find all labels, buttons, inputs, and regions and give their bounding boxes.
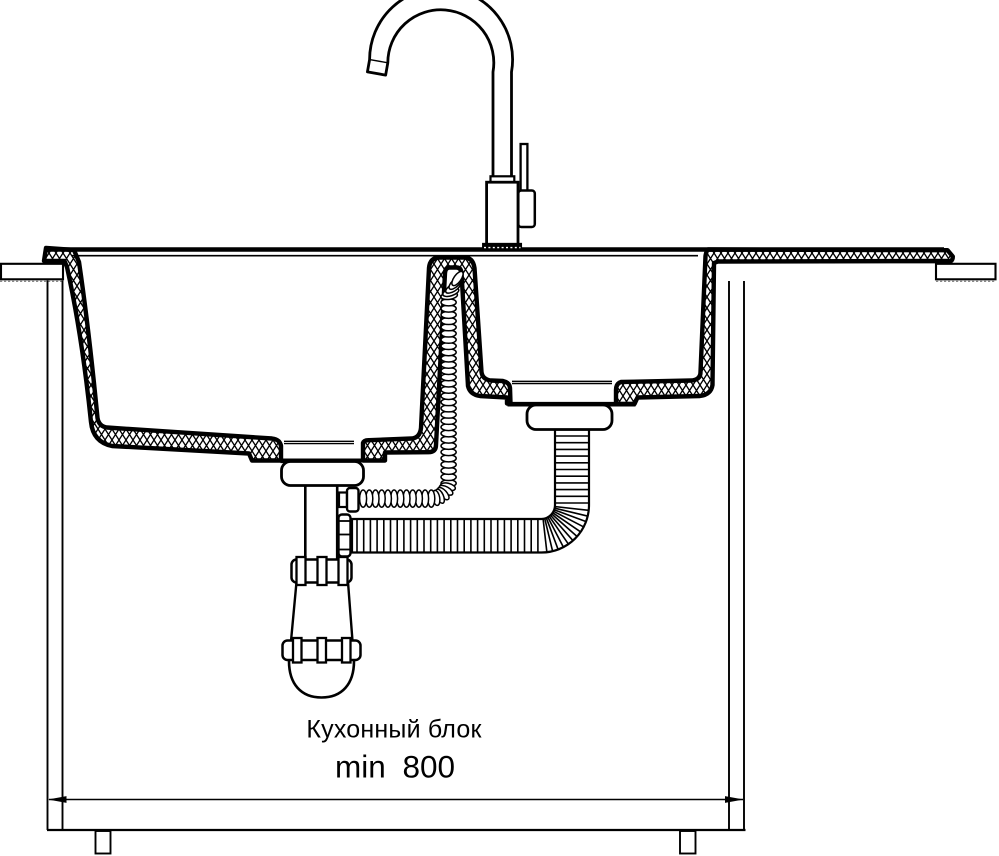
svg-text:min 800: min 800	[335, 749, 455, 785]
svg-text:Кухонный блок: Кухонный блок	[306, 716, 482, 744]
